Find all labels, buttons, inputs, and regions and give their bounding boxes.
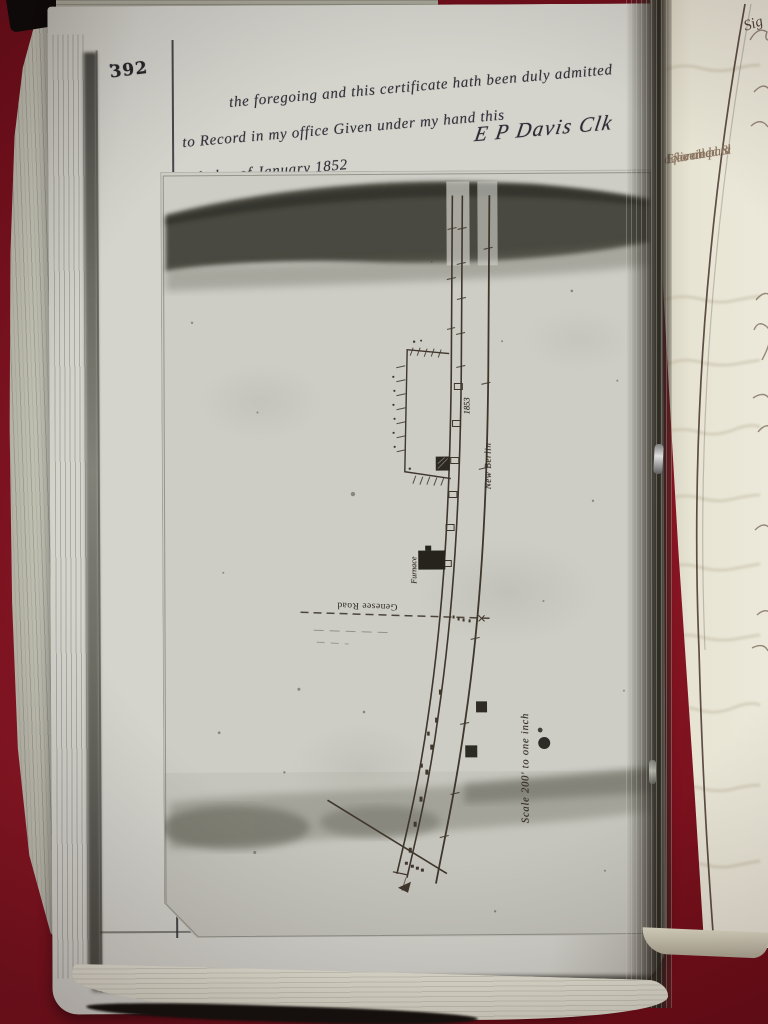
binding-pin [653, 444, 664, 474]
ledger-left-page: 392° the foregoing and this certificate … [47, 3, 666, 1014]
photo-open-record-book: 392° the foregoing and this certificate … [0, 0, 768, 1024]
recorded-survey-map: Furnace 1853 New Berlin Scale 200' to on… [160, 169, 656, 938]
edge-writing-fragments [750, 30, 768, 651]
year-label: 1853 [461, 397, 471, 414]
dashed-road-line [301, 611, 490, 644]
page-number-value: 392 [108, 58, 149, 83]
building-square [476, 701, 487, 712]
survey-map-drawing [161, 170, 657, 939]
scale-label: Scale 200' to one inch [520, 713, 532, 823]
furnace-label: Furnace [409, 557, 418, 584]
bleedthrough-writing [662, 65, 760, 867]
railroad-label: New Berlin [483, 443, 493, 490]
crossing-marks [453, 615, 471, 622]
top-smudge-band [165, 180, 650, 291]
page-number: 392° [108, 62, 116, 83]
ink-blob [538, 737, 550, 749]
binding-pin [649, 760, 656, 784]
spine-gutter-shadow [626, 0, 672, 1008]
furnace-building [418, 551, 445, 570]
building-square [465, 745, 477, 757]
